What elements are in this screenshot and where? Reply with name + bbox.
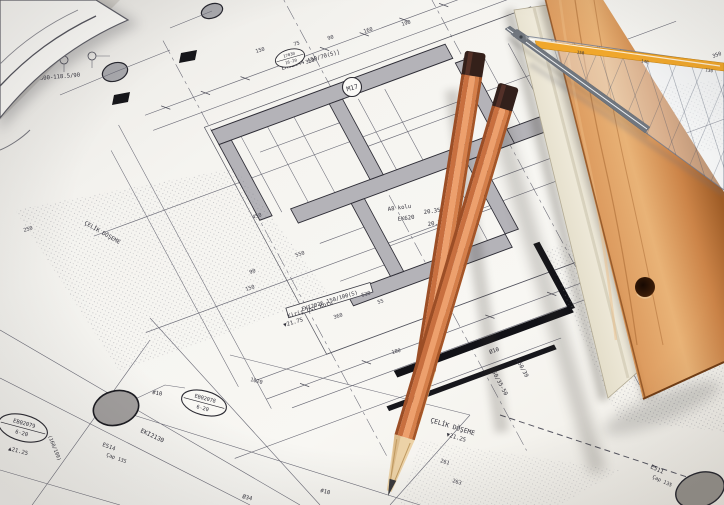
scene-svg: M17 150 75 90 160 190 350 350 EKI2026 15… — [0, 0, 724, 505]
photo-blueprint-scene: M17 150 75 90 160 190 350 350 EKI2026 15… — [0, 0, 724, 505]
vignette — [0, 0, 724, 505]
